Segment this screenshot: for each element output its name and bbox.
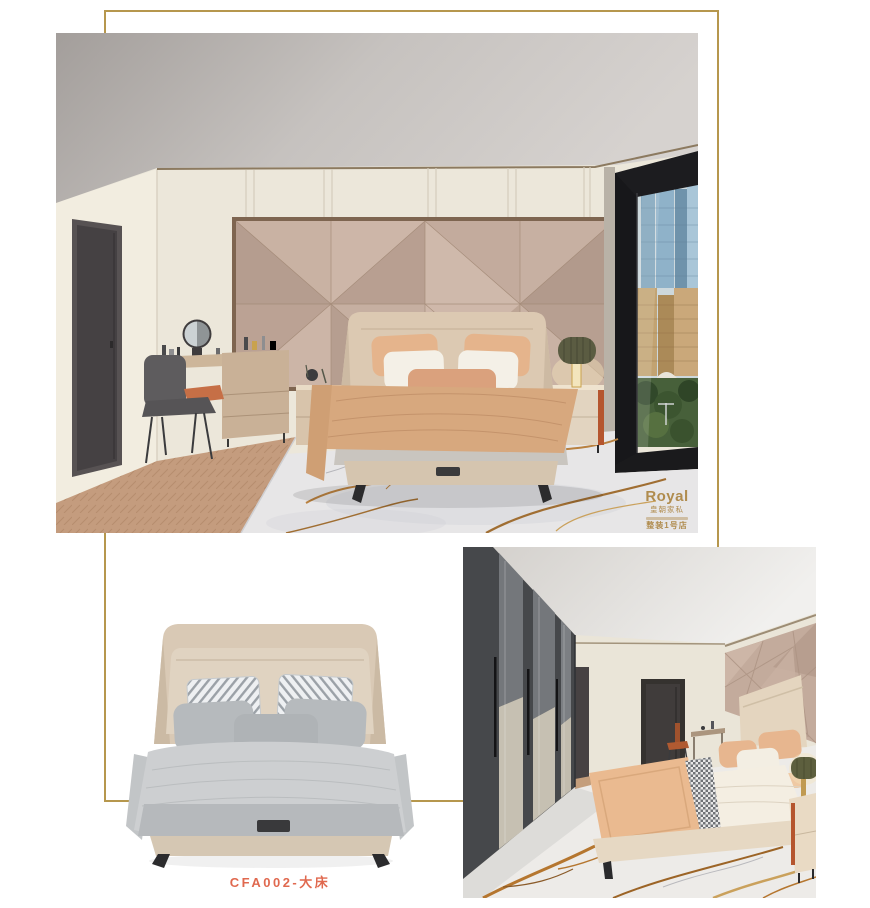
far-door [575, 667, 589, 779]
door [72, 219, 122, 477]
secondary-bedroom-photo [463, 547, 816, 898]
product-base [150, 836, 392, 856]
product-handle [257, 820, 290, 832]
watermark-brand-cn: 皇朝家私 [639, 506, 695, 515]
hero-bedroom-render [56, 33, 698, 533]
product-code-label: CFA002-大床 [120, 872, 440, 891]
nightstand-lamp [789, 753, 816, 883]
hero-bedroom-photo: Royal 皇朝家私 整装1号店 [56, 33, 698, 533]
brand-watermark: Royal 皇朝家私 整装1号店 [639, 488, 695, 530]
product-bed-photo [118, 602, 422, 868]
city-view [634, 183, 698, 447]
bed-handle [436, 467, 460, 476]
product-bed-render [118, 602, 422, 868]
window [604, 151, 698, 473]
watermark-brand: Royal [639, 488, 695, 505]
secondary-bedroom-render [463, 547, 816, 898]
watermark-fineprint-bar [646, 517, 688, 520]
catalog-page: Royal 皇朝家私 整装1号店 [0, 0, 870, 908]
watermark-store: 整装1号店 [639, 521, 695, 530]
vanity-drawers [222, 350, 289, 447]
